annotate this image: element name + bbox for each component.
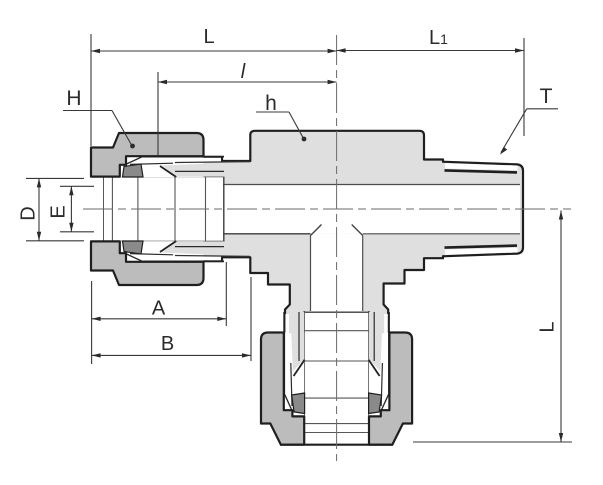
svg-text:A: A — [152, 298, 166, 320]
svg-text:L1: L1 — [429, 27, 448, 49]
svg-text:l: l — [241, 61, 246, 83]
svg-text:D: D — [18, 206, 40, 220]
svg-text:L: L — [537, 321, 559, 332]
svg-text:B: B — [161, 333, 174, 355]
svg-text:E: E — [48, 205, 70, 218]
svg-text:L: L — [203, 26, 214, 48]
svg-text:H: H — [66, 87, 81, 110]
svg-text:T: T — [540, 85, 553, 108]
